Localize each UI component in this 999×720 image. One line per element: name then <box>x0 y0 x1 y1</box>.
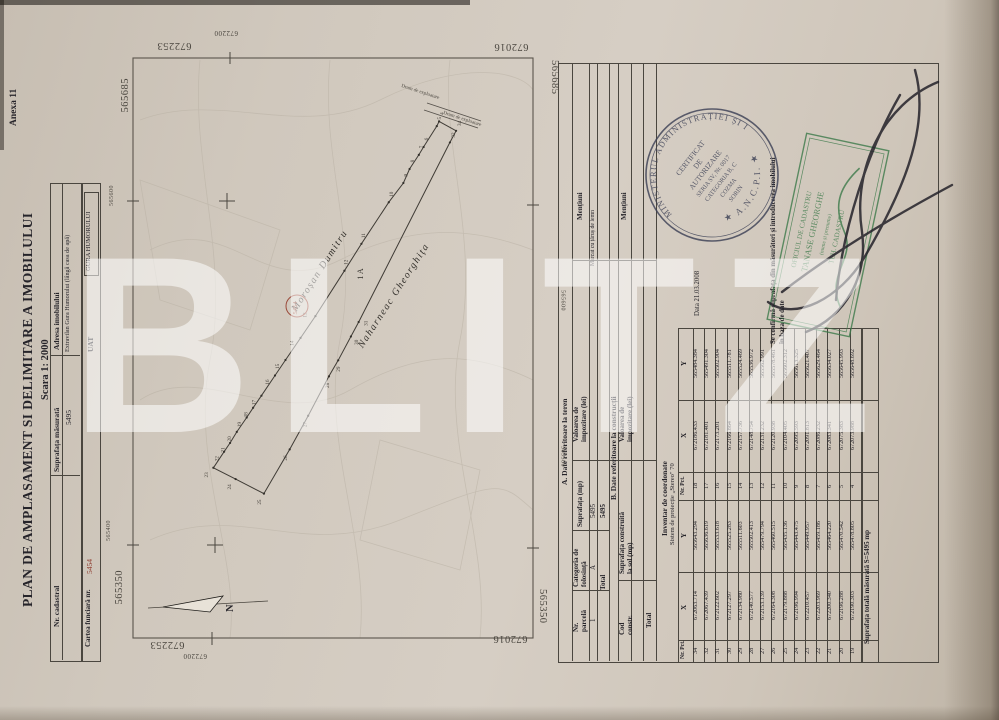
scan-edge-top <box>0 0 470 5</box>
stamps-layer: MINISTERUL ADMINISTRAȚIEI ȘI INTERNELOR … <box>0 0 999 720</box>
round-stamp: MINISTERUL ADMINISTRAȚIEI ȘI INTERNELOR … <box>128 11 805 720</box>
page-edge-shadow-right <box>944 0 999 720</box>
svg-text:MINISTERUL ADMINISTRAȚIEI ȘI I: MINISTERUL ADMINISTRAȚIEI ȘI INTERNELOR <box>128 13 750 720</box>
scanned-document-page: 4567891011121314151617181920212223242526… <box>0 0 999 720</box>
scan-edge-left <box>0 0 4 150</box>
page-edge-shadow-bottom <box>0 706 999 720</box>
green-stamp: OFICIUL DE CADASTRUTANASE GHEORGHE(nume … <box>767 133 889 336</box>
round-stamp-arc-top: MINISTERUL ADMINISTRAȚIEI ȘI INTERNELOR <box>128 13 750 720</box>
handwritten-signature <box>768 70 952 332</box>
